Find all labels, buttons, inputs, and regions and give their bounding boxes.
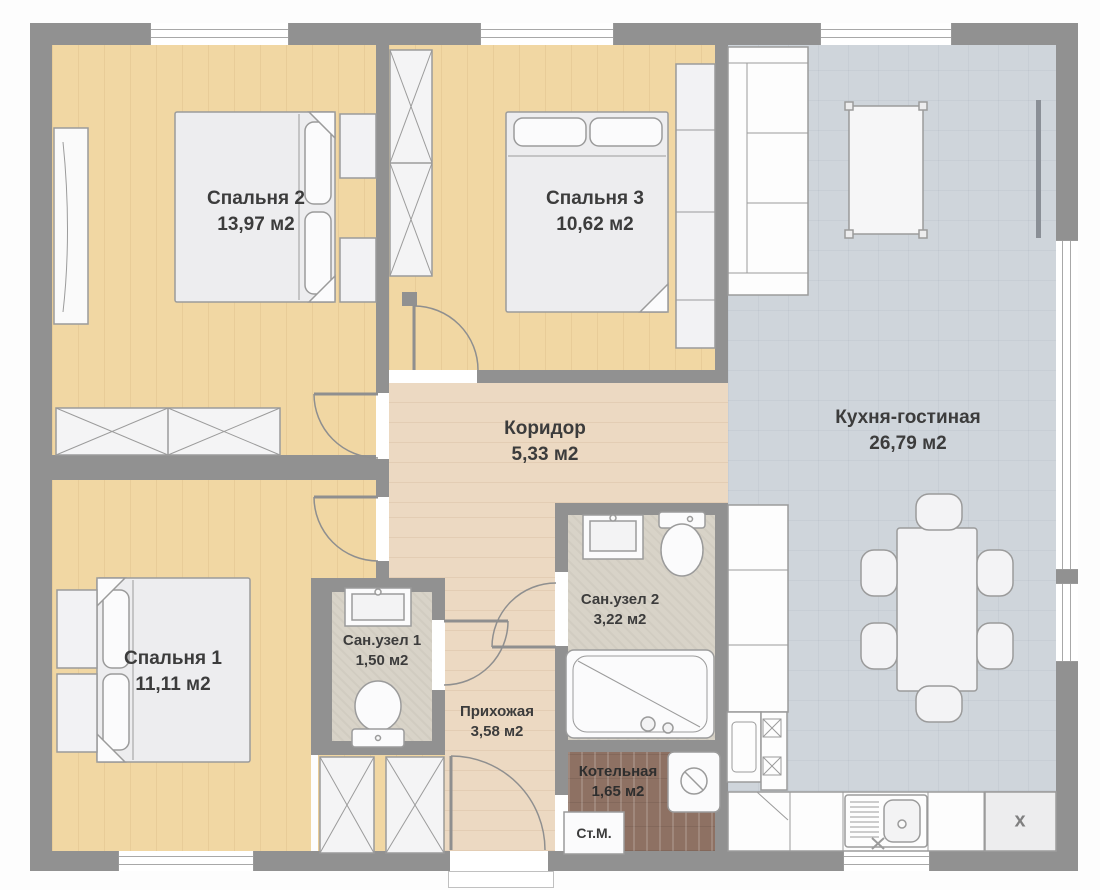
wall-door-stub [402,292,417,306]
floor-bedroom2 [52,45,376,455]
entrance-door-opening [450,851,548,871]
room-label-bath1: Сан.узел 1 1,50 м2 [343,631,421,671]
room-label-bedroom2: Спальня 2 13,97 м2 [207,186,305,238]
wall [477,370,728,383]
window-bedroom1 [118,851,254,871]
wall [715,45,728,383]
room-area: 1,50 м2 [343,651,421,671]
wall [311,741,445,755]
floor-plan: Спальня 2 13,97 м2 Спальня 3 10,62 м2 Ку… [0,0,1100,890]
wall [311,578,332,755]
room-area: 5,33 м2 [504,442,586,468]
room-area: 13,97 м2 [207,212,305,238]
room-name: Коридор [504,416,586,442]
wall [432,578,445,620]
wall [376,45,389,393]
room-area: 3,58 м2 [460,722,534,742]
room-name: Сан.узел 2 [581,590,659,610]
door-opening-bedroom2 [376,393,389,459]
room-label-kitchen: Кухня-гостиная 26,79 м2 [835,405,981,457]
door-opening-bedroom3 [389,370,477,383]
room-name: Спальня 3 [546,186,644,212]
window-kitchen-top [820,23,952,45]
window-kitchen-right-2 [1056,583,1078,662]
wall [555,646,568,752]
room-label-hallway: Прихожая 3,58 м2 [460,702,534,742]
door-opening-bath2 [555,572,568,646]
floor-hallway-top [389,503,555,578]
room-name: Кухня-гостиная [835,405,981,431]
room-label-corridor: Коридор 5,33 м2 [504,416,586,468]
door-opening-boiler [555,795,568,851]
window-bedroom2 [150,23,289,45]
floor-wardrobe-zone [318,755,445,851]
wall [52,455,389,480]
room-label-bedroom3: Спальня 3 10,62 м2 [546,186,644,238]
room-name: Прихожая [460,702,534,722]
reserved-cabinet-label: x [1014,810,1025,833]
wall [568,740,715,752]
room-name: Котельная [579,762,658,782]
room-label-bath2: Сан.узел 2 3,22 м2 [581,590,659,630]
wall [715,503,728,851]
room-area: 1,65 м2 [579,782,658,802]
door-opening-bath1 [432,620,445,690]
room-name: Сан.узел 1 [343,631,421,651]
wall [555,752,568,795]
window-bedroom3 [480,23,614,45]
window-kitchen-right-1 [1056,240,1078,570]
room-label-boiler: Котельная 1,65 м2 [579,762,658,802]
room-name: Спальня 2 [207,186,305,212]
washing-machine-label: Ст.М. [576,824,611,842]
room-label-bedroom1: Спальня 1 11,11 м2 [124,646,222,698]
wall [555,515,568,572]
room-area: 26,79 м2 [835,431,981,457]
wall-outer-left [30,23,52,871]
room-area: 11,11 м2 [124,672,222,698]
room-area: 3,22 м2 [581,610,659,630]
wall [555,503,728,515]
entrance-porch [448,871,554,888]
window-kitchen-bottom [843,851,930,871]
door-opening-bedroom1 [376,497,389,561]
floor-bedroom1-ext [311,480,376,578]
room-area: 10,62 м2 [546,212,644,238]
room-name: Спальня 1 [124,646,222,672]
